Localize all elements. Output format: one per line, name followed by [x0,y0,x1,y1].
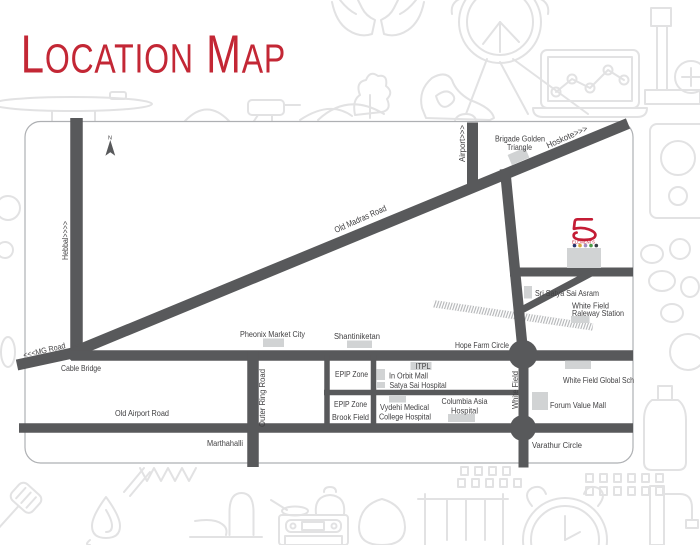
svg-text:Sri Satya Sai Asram: Sri Satya Sai Asram [535,288,599,298]
svg-text:Vydehi Medical: Vydehi Medical [380,402,429,412]
svg-text:Old Airport Road: Old Airport Road [115,408,169,418]
svg-text:Pheonix Market City: Pheonix Market City [240,329,306,339]
svg-text:Triangle: Triangle [507,142,532,152]
svg-text:LOCATION MAP: LOCATION MAP [21,26,286,85]
svg-text:Hope Farm Circle: Hope Farm Circle [455,340,509,350]
svg-text:Brook Field: Brook Field [332,412,369,422]
svg-text:White Field: White Field [510,371,520,409]
svg-text:In Orbit Mall: In Orbit Mall [389,371,428,381]
svg-text:Satya Sai Hospital: Satya Sai Hospital [390,380,447,390]
svg-text:Hospital: Hospital [451,406,478,416]
svg-text:ELEMENTS: ELEMENTS [572,240,595,245]
svg-text:Marthahalli: Marthahalli [207,438,243,448]
svg-text:Outer Ring Road: Outer Ring Road [257,369,267,427]
svg-text:Varathur Circle: Varathur Circle [532,440,582,450]
svg-text:Shantiniketan: Shantiniketan [334,331,380,341]
svg-text:Airport>>>: Airport>>> [457,125,467,162]
svg-text:White Field Global Sch: White Field Global Sch [563,375,634,385]
svg-text:Hebbal>>>>: Hebbal>>>> [60,221,70,260]
svg-text:N: N [108,136,112,142]
svg-text:EPIP Zone: EPIP Zone [334,399,367,409]
svg-text:EPIP Zone: EPIP Zone [335,369,368,379]
svg-text:College Hospital: College Hospital [379,412,431,422]
svg-text:Raleway Station: Raleway Station [572,308,624,318]
svg-text:Forum Value Mall: Forum Value Mall [550,400,606,410]
svg-text:Cable Bridge: Cable Bridge [61,363,101,373]
svg-text:Columbia Asia: Columbia Asia [442,396,488,406]
svg-text:ITPL: ITPL [416,361,431,371]
